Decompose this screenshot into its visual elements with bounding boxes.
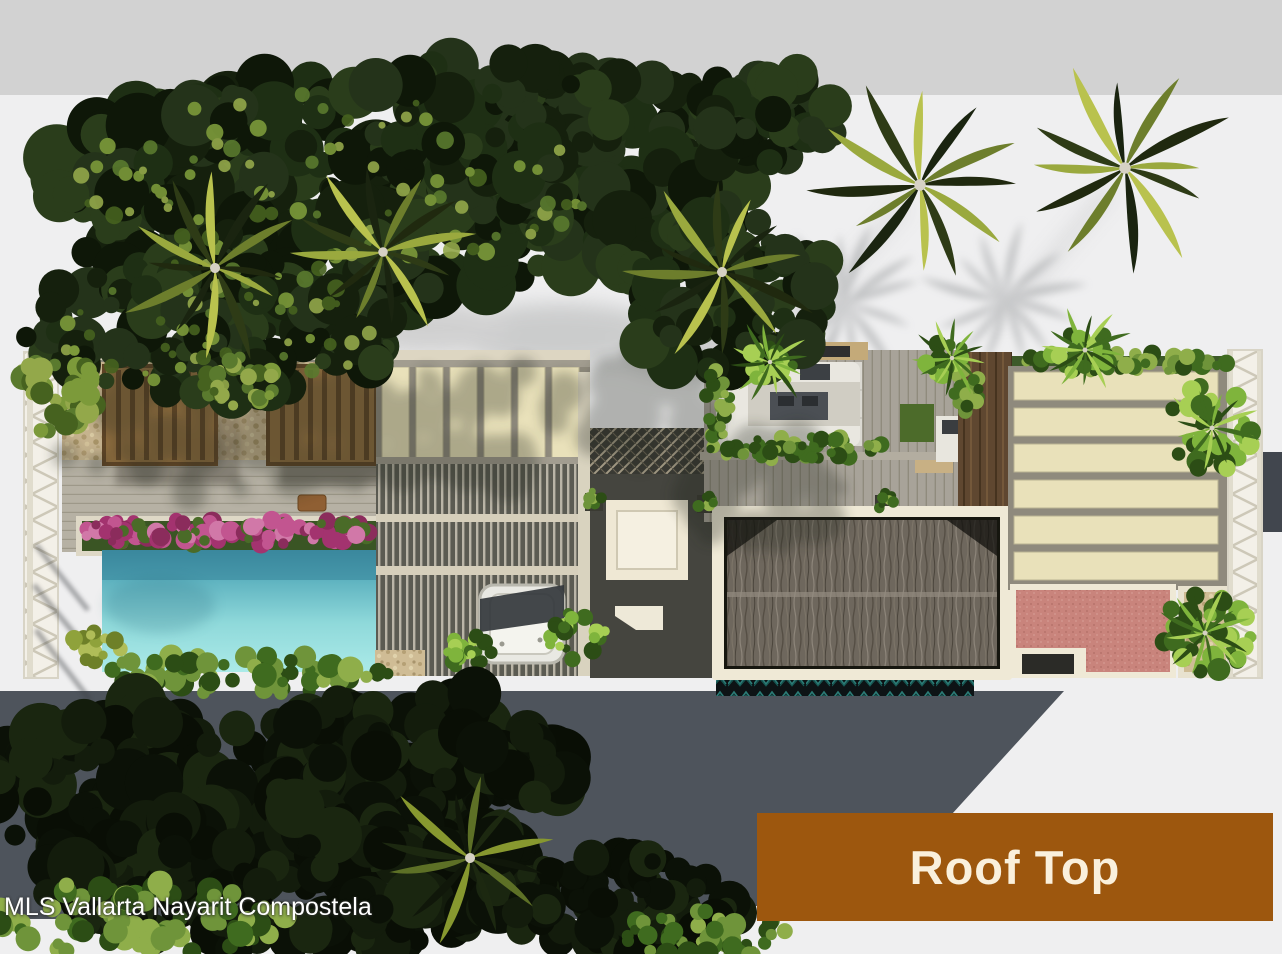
skylight (606, 500, 688, 580)
glass-strip (716, 680, 974, 696)
rooftop-render: Roof Top MLS Vallarta Nayarit Compostela (0, 0, 1282, 954)
render-canvas (0, 0, 1282, 954)
watermark-text: MLS Vallarta Nayarit Compostela (4, 893, 524, 922)
banner-label: Roof Top (910, 840, 1121, 895)
grass-patch (900, 404, 934, 442)
pink-terrace (1010, 584, 1176, 678)
title-banner: Roof Top (757, 813, 1273, 921)
